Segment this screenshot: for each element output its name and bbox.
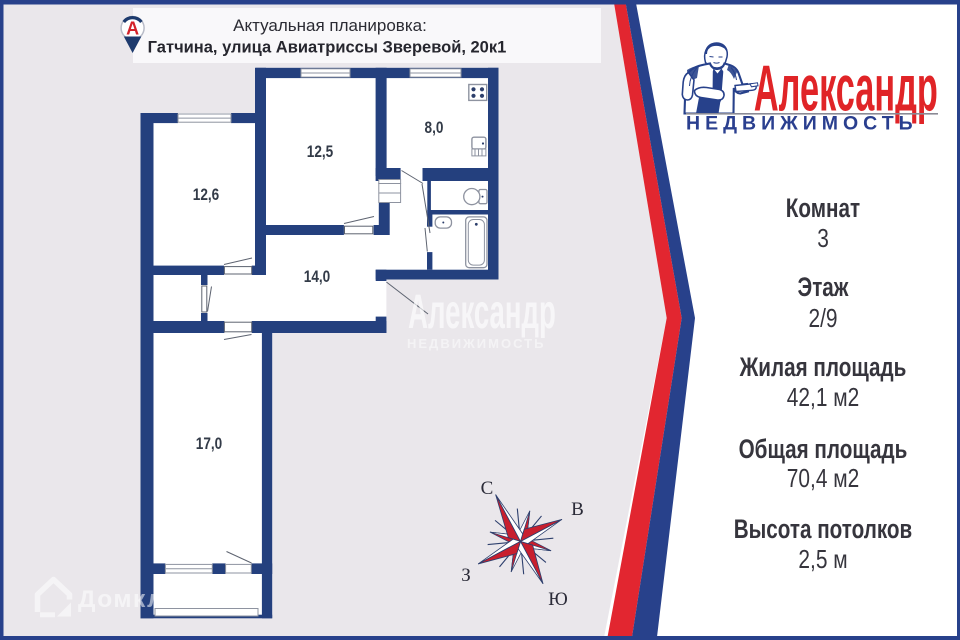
svg-text:НЕДВИЖИМОСТЬ: НЕДВИЖИМОСТЬ [686, 112, 918, 134]
svg-text:42,1 м2: 42,1 м2 [787, 383, 859, 411]
svg-text:Высота потолков: Высота потолков [734, 515, 913, 545]
svg-text:Александр: Александр [408, 286, 556, 339]
svg-text:3: 3 [817, 224, 829, 252]
svg-text:17,0: 17,0 [196, 435, 222, 454]
svg-text:З: З [461, 565, 471, 586]
svg-text:Гатчина, улица Авиатриссы Звер: Гатчина, улица Авиатриссы Зверевой, 20к1 [148, 39, 507, 57]
svg-text:Домклик: Домклик [78, 586, 194, 613]
svg-text:70,4 м2: 70,4 м2 [787, 464, 859, 492]
svg-text:НЕДВИЖИМОСТЬ: НЕДВИЖИМОСТЬ [407, 336, 545, 351]
svg-text:A: A [126, 19, 139, 39]
svg-text:12,6: 12,6 [193, 186, 219, 205]
svg-text:Общая площадь: Общая площадь [739, 435, 908, 465]
svg-text:8,0: 8,0 [425, 119, 444, 138]
svg-text:Актуальная планировка:: Актуальная планировка: [233, 16, 427, 35]
svg-text:Комнат: Комнат [786, 194, 860, 224]
svg-text:2,5 м: 2,5 м [798, 545, 847, 573]
svg-text:С: С [481, 478, 494, 499]
svg-text:Этаж: Этаж [798, 273, 850, 303]
svg-text:В: В [571, 499, 584, 520]
svg-text:12,5: 12,5 [307, 143, 334, 162]
svg-text:2/9: 2/9 [809, 304, 838, 332]
svg-text:14,0: 14,0 [304, 268, 330, 287]
svg-text:Ю: Ю [548, 589, 568, 610]
svg-text:Жилая площадь: Жилая площадь [739, 353, 907, 383]
